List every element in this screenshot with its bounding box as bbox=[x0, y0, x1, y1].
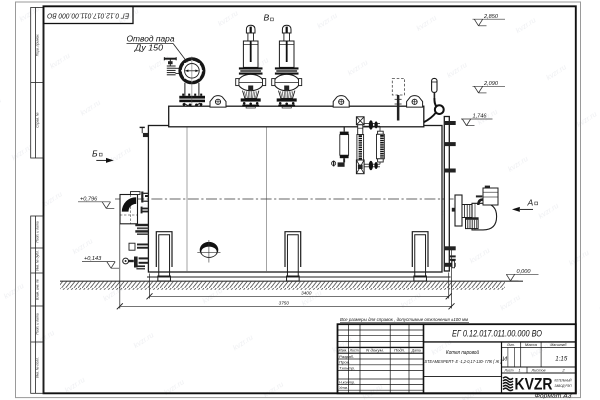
svg-text:Дата: Дата bbox=[411, 349, 421, 353]
svg-text:Листов: Листов bbox=[531, 368, 546, 373]
svg-text:Перв. примен.: Перв. примен. bbox=[36, 34, 40, 57]
svg-text:Отвод пара: Отвод пара bbox=[127, 35, 176, 44]
svg-text:1: 1 bbox=[518, 368, 520, 373]
svg-text:ЕГ 0.12.017.011.00.000 ВО: ЕГ 0.12.017.011.00.000 ВО bbox=[47, 11, 129, 20]
svg-text:1:15: 1:15 bbox=[555, 355, 568, 362]
svg-text:Инв. № дубл.: Инв. № дубл. bbox=[36, 250, 40, 271]
svg-text:Масштаб: Масштаб bbox=[550, 343, 567, 347]
svg-text:Ду 150: Ду 150 bbox=[134, 44, 164, 53]
svg-text:А: А bbox=[527, 197, 534, 207]
svg-text:STEAMEXPERT- Е -1,2-0,17-130-: STEAMEXPERT- Е -1,2-0,17-130- ГЛК ( Ж ) bbox=[425, 359, 502, 364]
svg-text:В: В bbox=[264, 13, 270, 23]
svg-text:Подп. и дата: Подп. и дата bbox=[36, 313, 40, 334]
svg-text:Формат А3: Формат А3 bbox=[535, 394, 572, 400]
svg-text:Лист: Лист bbox=[349, 349, 359, 353]
svg-text:Утв.: Утв. bbox=[339, 386, 348, 390]
svg-text:Котел паровой: Котел паровой bbox=[446, 349, 479, 356]
svg-text:Изм.: Изм. bbox=[339, 349, 348, 353]
svg-text:Справ. №: Справ. № bbox=[36, 112, 40, 128]
svg-text:Разраб.: Разраб. bbox=[339, 355, 354, 359]
svg-text:KVZR: KVZR bbox=[515, 376, 553, 394]
svg-text:Подп.: Подп. bbox=[394, 349, 405, 353]
svg-text:Все размеры для справок , допу: Все размеры для справок , допустимые отк… bbox=[340, 317, 469, 322]
svg-text:Инв. № подл.: Инв. № подл. bbox=[36, 357, 40, 378]
svg-text:ЗАВОД РЭП: ЗАВОД РЭП bbox=[555, 384, 572, 388]
svg-text:Лист: Лист bbox=[504, 368, 514, 373]
svg-text:Подп. и дата: Подп. и дата bbox=[36, 221, 40, 242]
svg-text:КОТЕЛЬНЫЙ: КОТЕЛЬНЫЙ bbox=[555, 378, 572, 382]
svg-text:3750: 3750 bbox=[279, 300, 290, 305]
svg-text:Н.контр.: Н.контр. bbox=[339, 381, 355, 385]
svg-text:Масса: Масса bbox=[525, 343, 537, 347]
svg-text:Пров.: Пров. bbox=[339, 361, 350, 365]
svg-text:Взам. инв. №: Взам. инв. № bbox=[36, 279, 40, 300]
svg-text:ЕГ 0.12.017.011.00.000 ВО: ЕГ 0.12.017.011.00.000 ВО bbox=[452, 329, 542, 339]
svg-text:Т.контр.: Т.контр. bbox=[339, 366, 355, 370]
svg-text:Б: Б bbox=[92, 149, 98, 159]
svg-text:N докум.: N докум. bbox=[366, 349, 384, 353]
svg-text:Лит.: Лит. bbox=[506, 343, 515, 347]
svg-text:И: И bbox=[502, 356, 507, 363]
svg-text:3400: 3400 bbox=[301, 290, 312, 295]
